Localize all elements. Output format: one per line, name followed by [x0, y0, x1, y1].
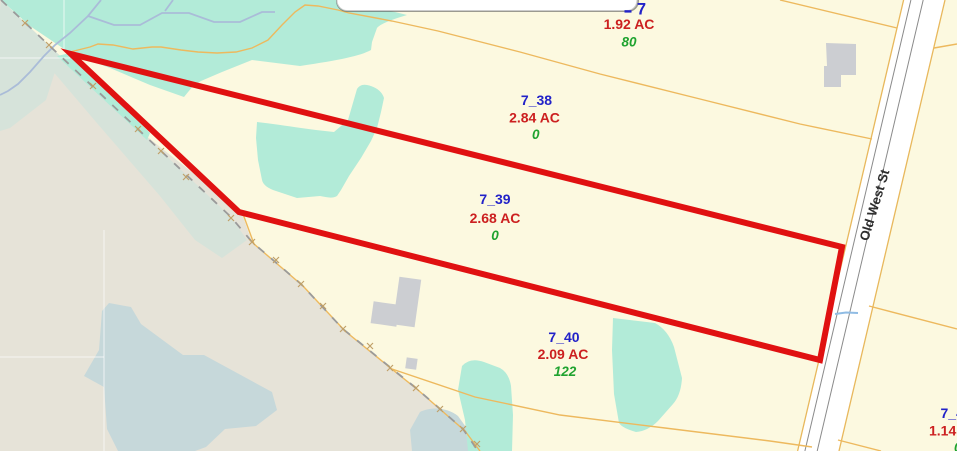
svg-text:1.14 A: 1.14 A — [929, 423, 957, 439]
svg-text:7_40: 7_40 — [548, 329, 579, 345]
svg-text:7_39: 7_39 — [479, 191, 510, 207]
svg-text:122: 122 — [554, 364, 577, 379]
svg-text:2.84 AC: 2.84 AC — [509, 110, 560, 126]
svg-text:0: 0 — [491, 228, 499, 243]
svg-text:7: 7 — [637, 1, 646, 19]
svg-text:80: 80 — [621, 35, 637, 50]
svg-text:1.92 AC: 1.92 AC — [604, 16, 655, 32]
svg-text:0: 0 — [532, 127, 540, 142]
svg-text:7_4: 7_4 — [941, 405, 957, 421]
svg-text:2.68 AC: 2.68 AC — [470, 210, 521, 226]
svg-text:2.09 AC: 2.09 AC — [538, 346, 589, 362]
svg-text:7_38: 7_38 — [521, 92, 552, 108]
